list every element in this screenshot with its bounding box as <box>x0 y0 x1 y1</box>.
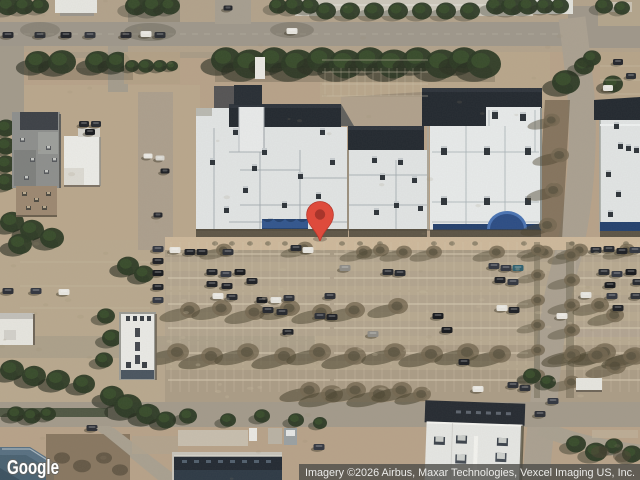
svg-text:Google: Google <box>7 457 59 479</box>
svg-text:Imagery ©2026 Airbus, Maxar Te: Imagery ©2026 Airbus, Maxar Technologies… <box>305 467 635 479</box>
